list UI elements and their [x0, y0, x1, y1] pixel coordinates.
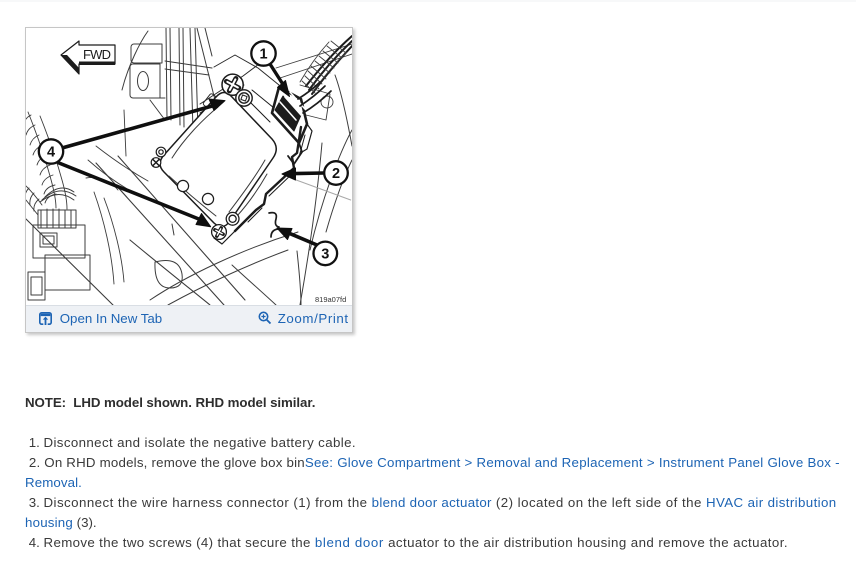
svg-text:4: 4: [47, 145, 55, 161]
svg-text:3: 3: [321, 247, 329, 263]
svg-text:FWD: FWD: [83, 47, 111, 62]
svg-text:819a07fd: 819a07fd: [315, 295, 346, 304]
svg-text:2: 2: [332, 166, 340, 182]
svg-text:1: 1: [259, 47, 267, 63]
